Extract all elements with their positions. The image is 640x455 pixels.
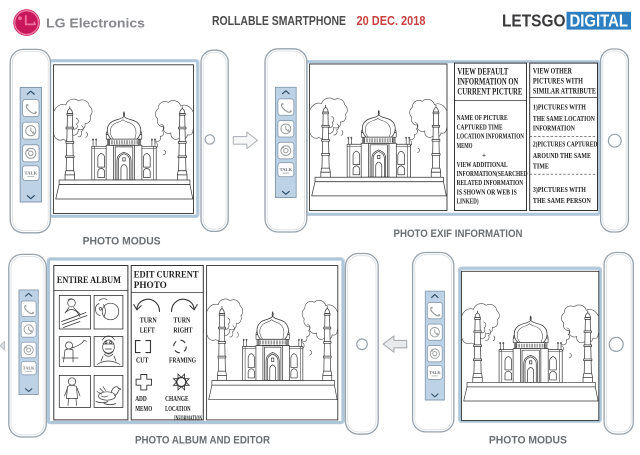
svg-text:LOCATION INFORMATION: LOCATION INFORMATION: [457, 133, 524, 141]
svg-text:TURN: TURN: [173, 317, 190, 324]
svg-text:3)PICTURES WITH: 3)PICTURES WITH: [533, 186, 586, 194]
svg-text:INFORMATION ON: INFORMATION ON: [457, 76, 518, 86]
svg-text:CHANGE: CHANGE: [165, 396, 189, 403]
svg-text:INFORMATION: INFORMATION: [533, 125, 575, 133]
svg-text:LEFT: LEFT: [140, 327, 155, 334]
svg-text:THE SAME LOCATION: THE SAME LOCATION: [533, 115, 595, 123]
svg-text:VIEW OTHER: VIEW OTHER: [533, 66, 572, 75]
svg-text:INFORMATION(SEARCHED: INFORMATION(SEARCHED: [457, 170, 528, 178]
svg-text:LG Electronics: LG Electronics: [46, 16, 145, 30]
svg-text:THE SAME PERSON: THE SAME PERSON: [533, 197, 591, 205]
svg-text:CAPTURED TIME: CAPTURED TIME: [457, 123, 503, 131]
svg-text:VIEW ADDITIONAL: VIEW ADDITIONAL: [457, 161, 508, 169]
svg-text:AROUND THE SAME: AROUND THE SAME: [533, 152, 591, 160]
svg-text:MEMO: MEMO: [135, 406, 152, 413]
svg-text:INFORMATION: INFORMATION: [174, 416, 202, 423]
svg-text:2)PICTURES CAPTURED: 2)PICTURES CAPTURED: [533, 140, 598, 148]
svg-text:LOCATION: LOCATION: [165, 406, 191, 413]
svg-text:LETSGO: LETSGO: [502, 11, 566, 31]
svg-text:PHOTO: PHOTO: [134, 281, 167, 291]
svg-text:MEMO: MEMO: [457, 142, 473, 150]
svg-text:RELATED INFORMATION: RELATED INFORMATION: [457, 179, 523, 187]
svg-text:IS SHOWN OR WEB IS: IS SHOWN OR WEB IS: [457, 189, 517, 197]
svg-text:SIMILAR ATTRIBUTE: SIMILAR ATTRIBUTE: [533, 87, 596, 96]
svg-text:FRAMING: FRAMING: [169, 358, 197, 365]
svg-text:PHOTO MODUS: PHOTO MODUS: [489, 435, 567, 447]
svg-text:PICTURES WITH: PICTURES WITH: [533, 76, 583, 85]
svg-text:ADD: ADD: [135, 396, 147, 403]
svg-text:CURRENT PICTURE: CURRENT PICTURE: [457, 86, 522, 96]
svg-text:LINKED): LINKED): [457, 198, 479, 206]
svg-text:PHOTO EXIF INFORMATION: PHOTO EXIF INFORMATION: [394, 228, 523, 240]
svg-text:PHOTO ALBUM AND EDITOR: PHOTO ALBUM AND EDITOR: [135, 435, 270, 447]
svg-text:CUT: CUT: [136, 358, 149, 365]
svg-text:DIGITAL: DIGITAL: [570, 11, 629, 31]
svg-text:+: +: [482, 152, 486, 160]
svg-text:NAME OF PICTURE: NAME OF PICTURE: [457, 114, 508, 122]
svg-text:RIGHT: RIGHT: [173, 327, 192, 334]
svg-text:20 DEC. 2018: 20 DEC. 2018: [357, 13, 426, 28]
svg-text:ENTIRE ALBUM: ENTIRE ALBUM: [57, 276, 121, 286]
svg-text:1)PICTURES WITH: 1)PICTURES WITH: [533, 104, 586, 112]
svg-text:PHOTO MODUS: PHOTO MODUS: [83, 235, 161, 247]
svg-text:TIME: TIME: [533, 162, 549, 170]
svg-text:TURN: TURN: [140, 317, 157, 324]
svg-text:EDIT CURRENT: EDIT CURRENT: [134, 270, 199, 280]
svg-text:ROLLABLE SMARTPHONE: ROLLABLE SMARTPHONE: [212, 13, 346, 28]
svg-text:VIEW DEFAULT: VIEW DEFAULT: [457, 66, 508, 76]
